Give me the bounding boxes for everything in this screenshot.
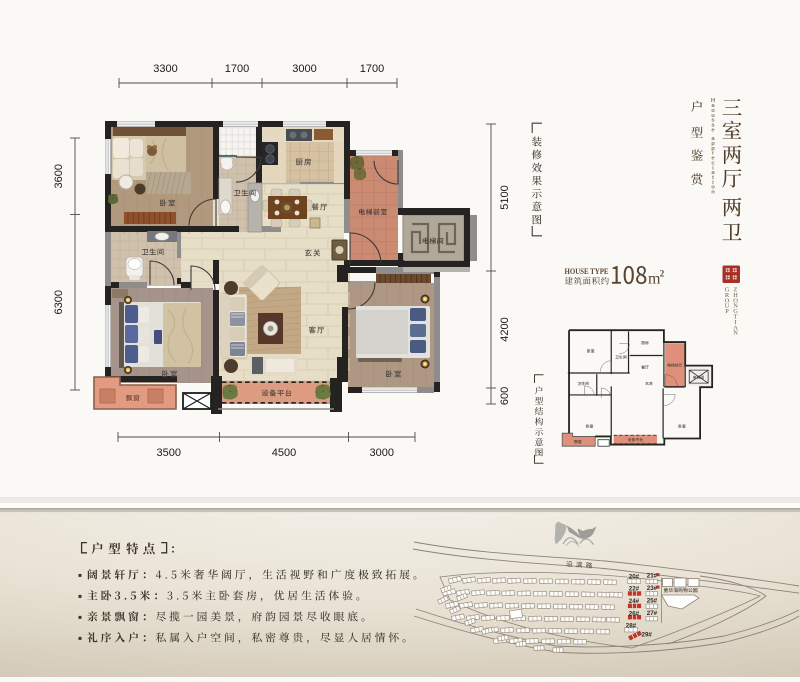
svg-text:3600: 3600	[53, 164, 65, 188]
svg-text:20#: 20#	[629, 573, 640, 580]
svg-text:28#: 28#	[626, 623, 637, 630]
svg-text:24#: 24#	[629, 598, 640, 605]
svg-text:N: N	[733, 330, 738, 337]
svg-text:26#: 26#	[629, 610, 640, 617]
svg-text::: :	[171, 542, 175, 556]
svg-text:22#: 22#	[629, 586, 640, 593]
svg-text:3500: 3500	[157, 447, 181, 459]
svg-text:6300: 6300	[53, 290, 65, 314]
svg-text:4500: 4500	[272, 447, 296, 459]
svg-text:1700: 1700	[225, 63, 249, 75]
svg-text:27#: 27#	[647, 610, 658, 617]
svg-text:2: 2	[660, 269, 665, 279]
svg-text:4200: 4200	[499, 317, 511, 341]
svg-text:1700: 1700	[360, 63, 384, 75]
svg-text:29#: 29#	[642, 632, 653, 639]
svg-text:21#: 21#	[647, 573, 658, 580]
svg-text:3000: 3000	[370, 447, 394, 459]
svg-text:3000: 3000	[292, 63, 316, 75]
svg-text:23#: 23#	[647, 585, 658, 592]
svg-text:25#: 25#	[647, 598, 658, 605]
svg-text:600: 600	[499, 387, 511, 405]
svg-text:HOUSE TYPE: HOUSE TYPE	[565, 266, 609, 276]
svg-text:3300: 3300	[153, 63, 177, 75]
svg-text:n: n	[711, 190, 715, 196]
svg-text:P: P	[725, 308, 729, 315]
svg-text:5100: 5100	[499, 185, 511, 209]
